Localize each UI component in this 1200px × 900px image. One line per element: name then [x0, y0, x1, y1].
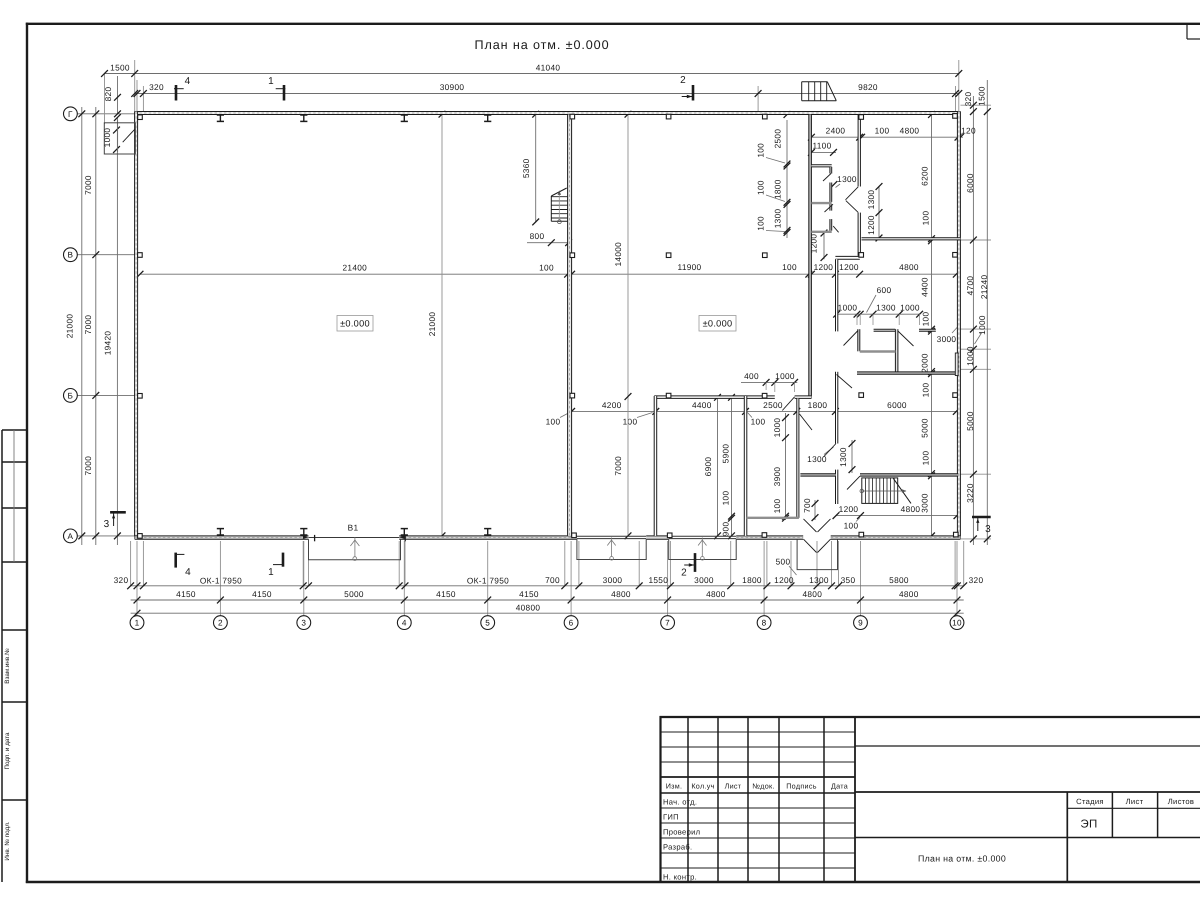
svg-text:1800: 1800 [742, 575, 762, 585]
svg-text:21000: 21000 [65, 314, 75, 339]
svg-text:800: 800 [530, 231, 545, 241]
svg-text:6000: 6000 [965, 173, 975, 193]
svg-text:1200: 1200 [774, 575, 794, 585]
svg-text:3000: 3000 [920, 493, 930, 513]
svg-text:В: В [68, 251, 74, 260]
svg-text:2: 2 [681, 568, 687, 579]
svg-text:5360: 5360 [521, 158, 531, 178]
svg-text:100: 100 [921, 211, 931, 226]
svg-text:Подп. и дата: Подп. и дата [4, 732, 11, 770]
svg-text:4800: 4800 [901, 504, 921, 514]
svg-text:±0.000: ±0.000 [340, 319, 370, 329]
svg-text:820: 820 [103, 87, 113, 102]
svg-text:4150: 4150 [252, 589, 272, 599]
svg-text:ОК-1 7950: ОК-1 7950 [467, 575, 509, 585]
svg-text:900: 900 [721, 522, 731, 537]
svg-text:21000: 21000 [427, 312, 437, 337]
svg-text:5800: 5800 [889, 575, 909, 585]
svg-text:4: 4 [402, 619, 407, 628]
svg-text:1: 1 [268, 76, 274, 87]
svg-text:1000: 1000 [102, 128, 112, 148]
svg-text:100: 100 [844, 521, 859, 531]
svg-text:3900: 3900 [772, 467, 782, 487]
svg-text:1200: 1200 [839, 262, 859, 272]
svg-text:700: 700 [802, 498, 812, 513]
svg-text:100: 100 [721, 491, 731, 506]
svg-text:7000: 7000 [83, 315, 93, 335]
svg-text:1300: 1300 [807, 454, 827, 464]
svg-text:1200: 1200 [814, 262, 834, 272]
svg-text:4: 4 [185, 76, 191, 87]
svg-text:ГИП: ГИП [663, 813, 679, 822]
svg-text:2500: 2500 [763, 400, 783, 410]
svg-text:4800: 4800 [899, 589, 919, 599]
svg-text:6: 6 [569, 619, 574, 628]
svg-text:4700: 4700 [965, 276, 975, 296]
svg-text:21400: 21400 [343, 263, 368, 273]
svg-text:Листов: Листов [1168, 797, 1194, 806]
svg-text:Разраб.: Разраб. [663, 843, 692, 852]
svg-text:100: 100 [772, 499, 782, 514]
svg-text:7: 7 [665, 619, 670, 628]
svg-text:1300: 1300 [809, 575, 829, 585]
svg-text:100: 100 [539, 263, 554, 273]
svg-text:100: 100 [756, 143, 766, 158]
svg-text:100: 100 [623, 416, 638, 426]
svg-text:Лист: Лист [725, 782, 742, 791]
svg-text:4150: 4150 [519, 589, 539, 599]
svg-text:1200: 1200 [866, 215, 876, 235]
svg-text:400: 400 [744, 371, 759, 381]
svg-text:100: 100 [546, 416, 561, 426]
svg-text:3000: 3000 [603, 575, 623, 585]
svg-text:100: 100 [756, 216, 766, 231]
svg-text:1200: 1200 [839, 504, 859, 514]
svg-text:Г: Г [68, 110, 73, 119]
svg-text:1100: 1100 [812, 141, 831, 151]
svg-text:7000: 7000 [83, 175, 93, 195]
svg-text:8: 8 [762, 619, 767, 628]
svg-text:1000: 1000 [772, 418, 782, 438]
svg-text:700: 700 [545, 575, 560, 585]
svg-text:100: 100 [921, 383, 931, 398]
svg-text:ЭП: ЭП [1080, 819, 1097, 831]
svg-text:4150: 4150 [176, 589, 196, 599]
svg-text:100: 100 [875, 126, 890, 136]
svg-text:1000: 1000 [900, 303, 920, 313]
svg-text:Взам.инв.№: Взам.инв.№ [4, 648, 11, 684]
svg-text:14000: 14000 [613, 242, 623, 267]
svg-text:6900: 6900 [703, 457, 713, 477]
svg-text:В1: В1 [348, 523, 359, 533]
svg-text:9820: 9820 [858, 82, 878, 92]
svg-text:2: 2 [218, 619, 223, 628]
svg-text:320: 320 [963, 92, 973, 107]
svg-text:Стадия: Стадия [1076, 797, 1104, 806]
svg-text:1: 1 [135, 619, 140, 628]
svg-text:1300: 1300 [866, 190, 876, 210]
svg-text:120: 120 [961, 126, 976, 136]
svg-text:Дата: Дата [831, 782, 848, 791]
svg-text:11900: 11900 [678, 262, 702, 272]
svg-text:1000: 1000 [977, 315, 987, 335]
svg-text:41040: 41040 [536, 63, 561, 73]
svg-text:7000: 7000 [83, 456, 93, 476]
svg-text:Б: Б [68, 391, 74, 400]
svg-text:3220: 3220 [965, 483, 975, 503]
svg-text:1300: 1300 [837, 174, 857, 184]
svg-text:4: 4 [185, 567, 191, 578]
svg-text:5900: 5900 [721, 444, 731, 464]
svg-text:10: 10 [952, 619, 962, 628]
svg-text:1800: 1800 [808, 400, 828, 410]
svg-text:План на отм. ±0.000: План на отм. ±0.000 [475, 38, 610, 52]
svg-text:1000: 1000 [838, 303, 858, 313]
svg-text:100: 100 [921, 312, 931, 327]
svg-text:±0.000: ±0.000 [703, 319, 733, 329]
svg-text:6200: 6200 [920, 166, 930, 186]
svg-text:7000: 7000 [613, 456, 623, 476]
svg-text:5000: 5000 [920, 418, 930, 438]
svg-text:5000: 5000 [344, 589, 364, 599]
svg-text:2500: 2500 [773, 129, 783, 149]
svg-text:21240: 21240 [979, 275, 989, 300]
svg-text:320: 320 [114, 575, 129, 585]
svg-text:1: 1 [268, 567, 274, 578]
svg-text:4800: 4800 [899, 262, 919, 272]
svg-text:Инв. № подл.: Инв. № подл. [4, 821, 11, 860]
svg-text:30900: 30900 [440, 82, 465, 92]
svg-text:40800: 40800 [516, 603, 541, 613]
svg-text:320: 320 [969, 575, 984, 585]
svg-text:4150: 4150 [436, 589, 456, 599]
svg-text:1000: 1000 [775, 371, 795, 381]
svg-text:1300: 1300 [876, 303, 896, 313]
svg-text:4800: 4800 [611, 589, 631, 599]
svg-text:100: 100 [921, 451, 931, 466]
svg-text:1300: 1300 [838, 447, 848, 467]
svg-text:1550: 1550 [648, 575, 668, 585]
svg-text:ОК-1 7950: ОК-1 7950 [200, 575, 242, 585]
svg-text:Нач. отд.: Нач. отд. [663, 798, 697, 807]
svg-text:№док.: №док. [752, 782, 775, 791]
svg-text:350: 350 [841, 575, 856, 585]
svg-text:2: 2 [680, 75, 686, 86]
svg-text:100: 100 [751, 416, 766, 426]
svg-text:4400: 4400 [920, 277, 930, 297]
svg-text:Лист: Лист [1126, 797, 1144, 806]
svg-text:3: 3 [104, 519, 110, 530]
svg-text:1500: 1500 [110, 63, 130, 73]
svg-text:100: 100 [782, 262, 797, 272]
svg-text:19420: 19420 [103, 331, 113, 356]
svg-text:500: 500 [776, 557, 791, 567]
svg-text:План на отм. ±0.000: План на отм. ±0.000 [918, 854, 1006, 864]
svg-text:3: 3 [985, 524, 991, 535]
svg-text:1300: 1300 [773, 208, 783, 228]
svg-text:Изм.: Изм. [666, 782, 683, 791]
svg-text:4400: 4400 [692, 400, 712, 410]
svg-text:4800: 4800 [706, 589, 726, 599]
svg-text:600: 600 [877, 285, 892, 295]
svg-text:9: 9 [858, 619, 863, 628]
svg-text:5000: 5000 [965, 411, 975, 431]
svg-text:4800: 4800 [802, 589, 822, 599]
svg-text:6000: 6000 [887, 400, 907, 410]
svg-text:Проверил: Проверил [663, 828, 700, 837]
svg-text:А: А [68, 532, 74, 541]
svg-text:1800: 1800 [773, 179, 783, 199]
svg-text:2000: 2000 [920, 353, 930, 373]
svg-text:1000: 1000 [965, 346, 975, 366]
svg-text:3000: 3000 [694, 575, 714, 585]
svg-text:4200: 4200 [602, 400, 622, 410]
svg-text:5: 5 [485, 619, 490, 628]
svg-text:Н. контр.: Н. контр. [663, 873, 697, 882]
svg-text:Кол.уч: Кол.уч [691, 782, 714, 791]
svg-text:Подпись: Подпись [786, 782, 817, 791]
svg-text:1500: 1500 [976, 86, 986, 106]
svg-text:100: 100 [756, 180, 766, 195]
svg-text:4800: 4800 [900, 126, 920, 136]
svg-text:320: 320 [149, 82, 164, 92]
svg-text:2400: 2400 [826, 126, 846, 136]
svg-text:3000: 3000 [937, 334, 957, 344]
svg-text:3: 3 [301, 619, 306, 628]
